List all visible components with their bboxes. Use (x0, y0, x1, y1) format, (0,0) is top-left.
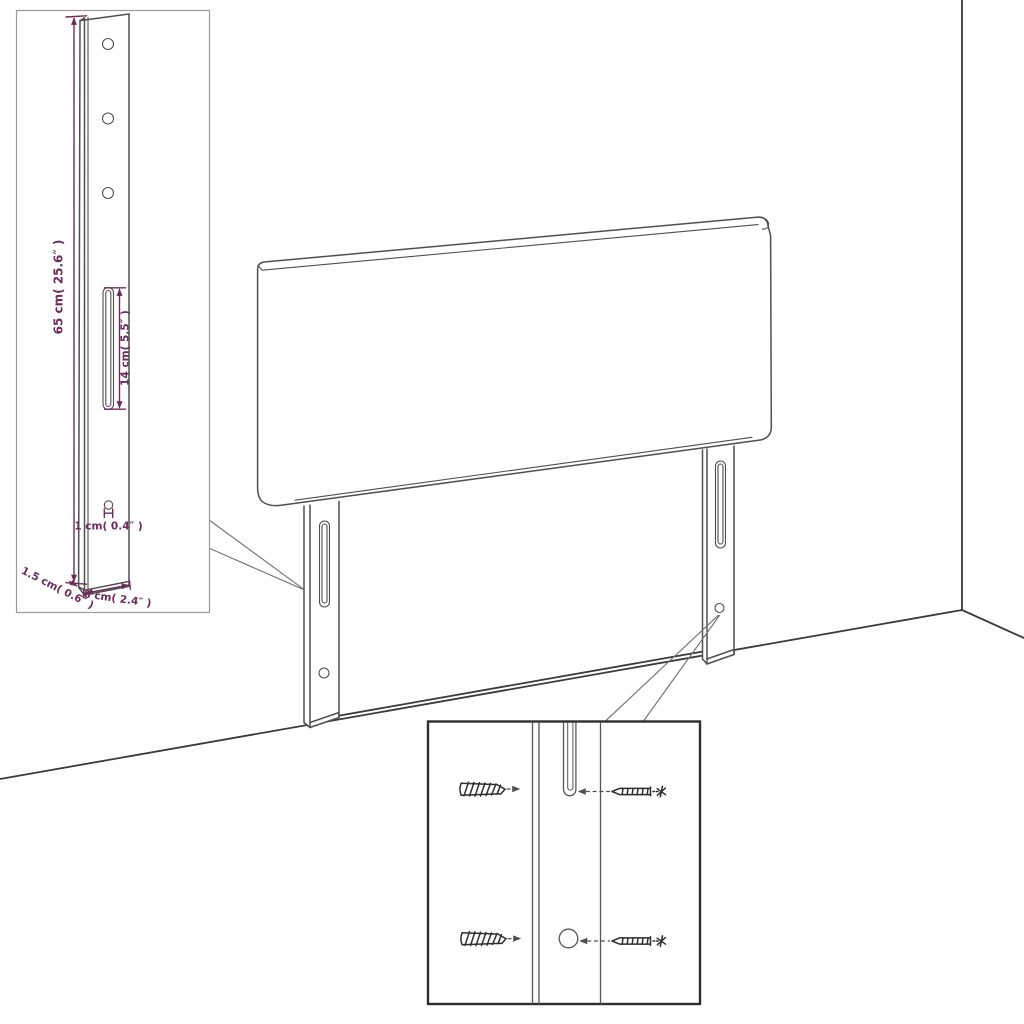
leg-detail-callout-lines (210, 521, 304, 590)
headboard-bottom-thickness-line (295, 437, 752, 500)
headboard-right-leg (703, 445, 735, 664)
fastener-detail-inset (428, 722, 700, 1005)
dimension-slot-length-label: 14 cm( 5.5″ ) (120, 310, 132, 386)
dimension-height-label: 65 cm( 25.6″ ) (52, 240, 66, 335)
dimension-hole-diameter-label: 1 cm( 0.4″ ) (74, 521, 142, 533)
headboard-left-leg (304, 501, 339, 728)
leg-detail-inset: 65 cm( 25.6″ ) 14 cm( 5.5″ ) 1 cm( 0.4″ … (17, 11, 210, 613)
detail-leg-drawing (79, 14, 129, 595)
assembly-diagram-page: 65 cm( 25.6″ ) 14 cm( 5.5″ ) 1 cm( 0.4″ … (0, 0, 1024, 1024)
floor-line-parallel (340, 652, 703, 716)
floor-line-right (962, 610, 1024, 638)
headboard-top-lip-line (258, 225, 758, 271)
headboard-panel (258, 217, 772, 506)
headboard-assembly-diagram: 65 cm( 25.6″ ) 14 cm( 5.5″ ) 1 cm( 0.4″ … (0, 0, 1024, 1024)
headboard-outline (258, 217, 772, 506)
